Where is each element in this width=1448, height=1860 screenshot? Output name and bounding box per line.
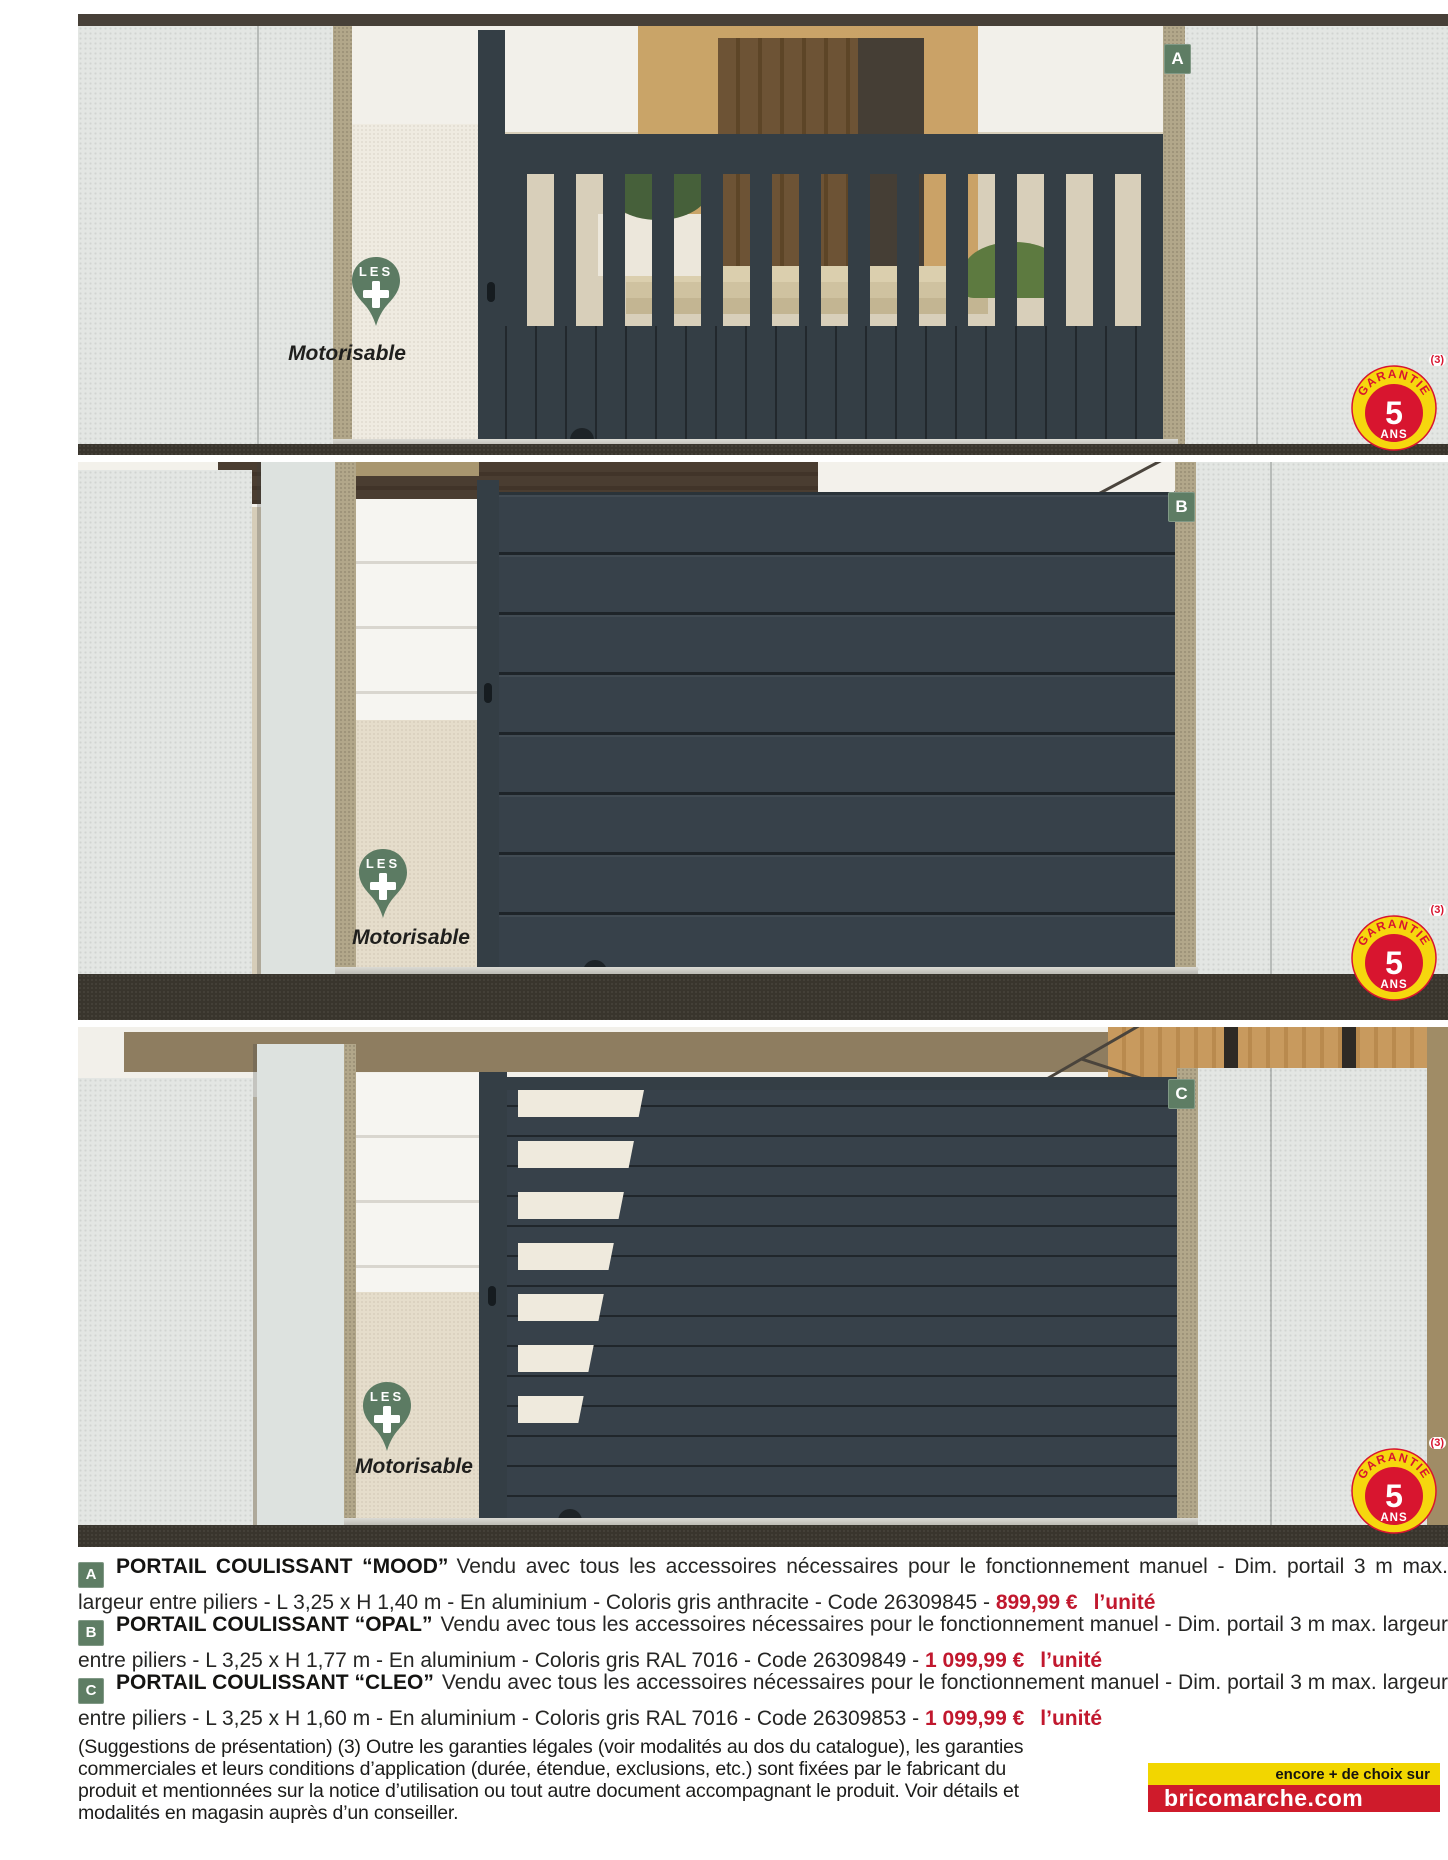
product-letter: B: [86, 1618, 97, 1647]
warranty-ans: ANS: [1380, 429, 1407, 441]
tan-strip-right: [1163, 26, 1185, 447]
tan-strip-right: [1177, 1068, 1198, 1525]
garage-door: [356, 499, 479, 720]
warranty-years: 5: [1385, 1478, 1403, 1514]
gate-lock: [484, 683, 492, 703]
pillar-left: [78, 26, 333, 447]
logo-tagline: encore + de choix sur: [1148, 1763, 1440, 1785]
les-plus-label: LES: [366, 856, 400, 871]
product-title: PORTAIL COULISSANT “OPAL”: [116, 1613, 432, 1636]
les-plus-label: LES: [359, 264, 393, 279]
product-letter-badge: B: [78, 1620, 104, 1646]
product-unit: l’unité: [1040, 1707, 1102, 1730]
tan-strip-right: [1175, 462, 1196, 982]
ground: [78, 1525, 1448, 1547]
pillar-left-front: [257, 1044, 344, 1525]
warranty-ans: ANS: [1380, 1512, 1407, 1524]
motorisable-label: Motorisable: [314, 1455, 514, 1479]
gate-top-rail: [507, 1077, 1177, 1090]
photo-letter: C: [1175, 1084, 1187, 1104]
warranty-5-years-badge: (3) GARANTIE 5 ANS: [1350, 1437, 1446, 1537]
gate-top-rail: [505, 134, 1163, 174]
pillar-right-seam: [1270, 462, 1272, 982]
warranty-5-years-badge: (3) GARANTIE 5 ANS: [1350, 354, 1446, 454]
tan-strip-left: [333, 26, 352, 447]
product-photo-opal: B LES Motorisable (3) GARANTIE 5 ANS: [78, 462, 1448, 1020]
tan-strip-left: [335, 462, 356, 982]
les-plus-pin-icon: LES: [357, 848, 409, 920]
logo-site-url[interactable]: bricomarche.com: [1148, 1785, 1440, 1812]
motorisable-label: Motorisable: [247, 342, 447, 366]
product-photo-mood: A LES Motorisable (3) GARANTIE 5 ANS: [78, 14, 1448, 455]
ground: [78, 974, 1448, 1020]
warranty-ans: ANS: [1380, 979, 1407, 991]
gate-lock: [488, 1286, 496, 1306]
pillar-right-seam: [1256, 26, 1258, 447]
les-plus-label: LES: [370, 1389, 404, 1404]
pillar-right-seam: [1270, 1068, 1272, 1525]
product-price: 1 099,99 €: [925, 1707, 1024, 1730]
photo-letter: B: [1175, 497, 1187, 517]
warranty-5-years-badge: (3) GARANTIE 5 ANS: [1350, 904, 1446, 1004]
roof-strip: [78, 14, 1448, 26]
gate-post: [477, 480, 499, 974]
pillar-left-rear: [78, 470, 252, 982]
warranty-years: 5: [1385, 945, 1403, 981]
tan-strip-left: [344, 1044, 356, 1525]
garage-lintel: [356, 462, 479, 476]
gate-lock: [487, 282, 495, 302]
product-title: PORTAIL COULISSANT “MOOD”: [116, 1555, 448, 1578]
product-letter-badge: C: [78, 1678, 104, 1704]
gate-lower-panel: [505, 326, 1163, 439]
pillar-seam: [257, 26, 259, 447]
product-letter: A: [86, 1560, 97, 1589]
photo-letter-badge: C: [1168, 1079, 1195, 1109]
photo-letter: A: [1171, 49, 1183, 69]
garage-door: [356, 1073, 479, 1292]
product-letter: C: [86, 1676, 97, 1705]
product-row-cleo: CPORTAIL COULISSANT “CLEO”Vendu avec tou…: [78, 1668, 1448, 1733]
photo-letter-badge: B: [1168, 492, 1195, 522]
warranty-years: 5: [1385, 395, 1403, 431]
pillar-left-front: [261, 462, 335, 982]
gate-panel: [499, 492, 1175, 977]
photo-letter-badge: A: [1164, 44, 1191, 74]
les-plus-pin-icon: LES: [350, 256, 402, 328]
product-row-mood: APORTAIL COULISSANT “MOOD”Vendu avec tou…: [78, 1552, 1448, 1617]
gate-post: [478, 30, 505, 442]
bricomarche-logo: encore + de choix sur bricomarche.com: [1148, 1763, 1440, 1812]
legal-text: (Suggestions de présentation) (3) Outre …: [78, 1736, 1043, 1824]
ground: [78, 444, 1448, 455]
product-letter-badge: A: [78, 1562, 104, 1588]
gate-balusters: [505, 174, 1163, 326]
product-title: PORTAIL COULISSANT “CLEO”: [116, 1671, 434, 1694]
motorisable-label: Motorisable: [311, 926, 511, 950]
product-photo-cleo: C LES Motorisable (3) GARANTIE 5 ANS: [78, 1027, 1448, 1547]
product-row-opal: BPORTAIL COULISSANT “OPAL”Vendu avec tou…: [78, 1610, 1448, 1675]
les-plus-pin-icon: LES: [361, 1381, 413, 1453]
pillar-left-rear: [78, 1078, 253, 1525]
